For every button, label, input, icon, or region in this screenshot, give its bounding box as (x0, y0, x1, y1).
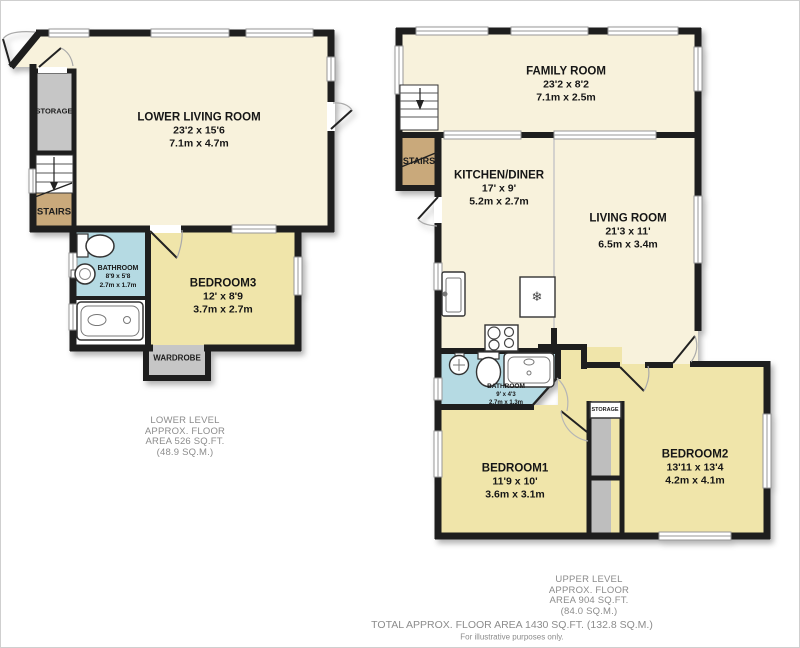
bathtub (504, 353, 554, 387)
lower-level-plan (3, 29, 352, 378)
upper-bathroom-label: BATHROOM 9' x 4'3 2.7m x 1.3m (487, 383, 525, 407)
window (246, 29, 313, 37)
living-room-label: LIVING ROOM 21'3 x 11' 6.5m x 3.4m (589, 213, 666, 252)
window (151, 29, 229, 37)
bathtub (77, 302, 143, 340)
window (554, 131, 656, 139)
total-floor-area: TOTAL APPROX. FLOOR AREA 1430 SQ.FT. (13… (371, 619, 653, 631)
lower-bathroom-label: BATHROOM 8'9 x 5'8 2.7m x 1.7m (98, 264, 139, 290)
window (434, 431, 442, 477)
disclaimer: For illustrative purposes only. (460, 633, 563, 642)
lower-storage-label: STORAGE (36, 107, 73, 116)
window (659, 532, 731, 540)
upper-storage-label: STORAGE (591, 407, 618, 413)
kitchen-sink (442, 272, 465, 316)
upper-stairs-label: STAIRS (403, 156, 435, 166)
kitchen-floor (438, 135, 558, 351)
floorplan-drawing (1, 1, 800, 648)
window (416, 27, 488, 35)
wardrobe-label: WARDROBE (153, 354, 201, 363)
window (232, 225, 276, 233)
window (608, 27, 678, 35)
window (444, 131, 521, 139)
window (49, 29, 89, 37)
window (69, 304, 77, 330)
window (511, 27, 588, 35)
lower-stairs-label: STAIRS (37, 207, 71, 218)
lower-living-room-label: LOWER LIVING ROOM 23'2 x 15'6 7.1m x 4.7… (137, 112, 260, 151)
window (694, 47, 702, 91)
fridge-icon: ❄ (532, 289, 543, 305)
window (434, 263, 442, 290)
window (434, 378, 442, 400)
bedroom2-label: BEDROOM2 13'11 x 13'4 4.2m x 4.1m (662, 449, 728, 488)
toilet (77, 234, 114, 257)
kitchen-diner-label: KITCHEN/DINER 17' x 9' 5.2m x 2.7m (454, 170, 544, 209)
hob (485, 325, 518, 351)
toilet (477, 352, 501, 387)
floorplan-canvas: LOWER LIVING ROOM 23'2 x 15'6 7.1m x 4.7… (0, 0, 800, 648)
bedroom1-label: BEDROOM1 11'9 x 10' 3.6m x 3.1m (482, 463, 548, 502)
window (294, 257, 302, 295)
window (763, 414, 771, 488)
upper-level-footer: UPPER LEVEL APPROX. FLOOR AREA 904 SQ.FT… (549, 575, 629, 617)
family-room-label: FAMILY ROOM 23'2 x 8'2 7.1m x 2.5m (526, 66, 606, 105)
bedroom3-label: BEDROOM3 12' x 8'9 3.7m x 2.7m (190, 278, 256, 317)
window (327, 57, 335, 81)
window (694, 196, 702, 263)
lower-stairs-drawing (35, 155, 73, 197)
lower-level-footer: LOWER LEVEL APPROX. FLOOR AREA 526 SQ.FT… (145, 416, 225, 458)
